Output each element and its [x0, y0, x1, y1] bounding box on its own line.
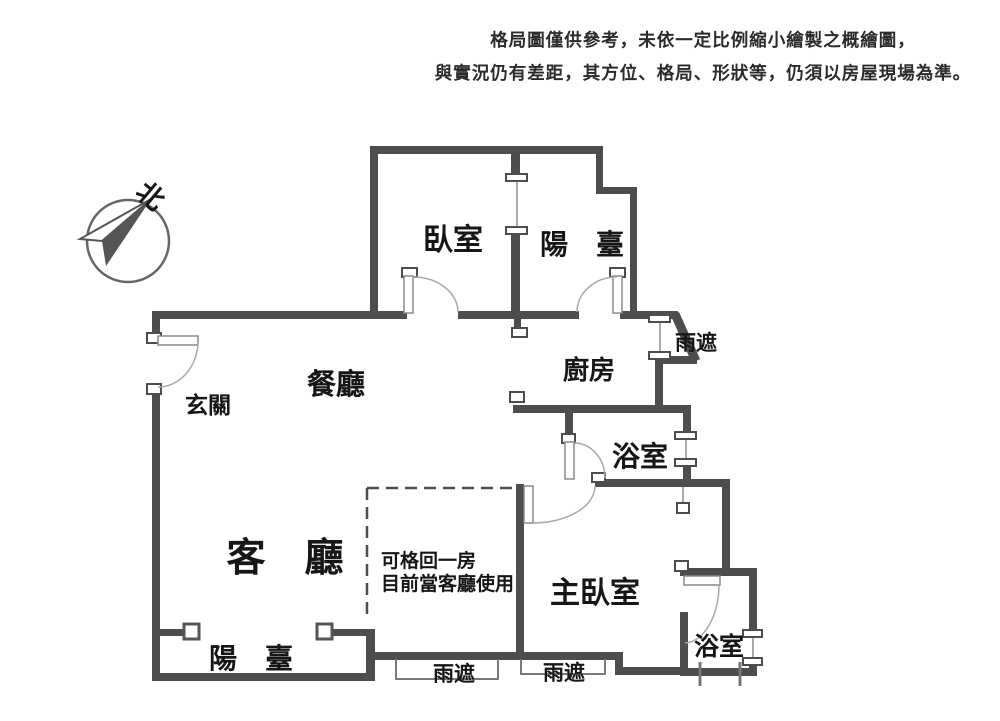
wall-segment — [371, 652, 623, 660]
label-entry: 玄關 — [185, 392, 231, 418]
balcony-rail — [160, 629, 185, 636]
wall-segment — [680, 668, 757, 676]
wall-segment — [511, 146, 520, 175]
wall-segment — [655, 356, 663, 413]
label-rain-cover-right: 雨遮 — [675, 331, 717, 355]
window-tick — [649, 315, 670, 322]
wall-segment — [511, 234, 520, 319]
label-bedroom: 臥室 — [423, 223, 483, 257]
wall-segment — [596, 146, 603, 194]
entry-door-leaf — [158, 336, 198, 345]
wall-segment — [366, 629, 375, 681]
column-marker — [184, 624, 199, 639]
wall-cap — [592, 473, 605, 482]
lower-bath-door-leaf — [684, 576, 720, 585]
floor-plan-page: 格局圖僅供參考，未依一定比例縮小繪製之概繪圖， 與實況仍有差距，其方位、格局、形… — [0, 0, 1000, 721]
window-tick — [743, 658, 762, 665]
wall-segment — [152, 387, 160, 681]
wall-segment — [680, 568, 757, 576]
label-balcony-top: 陽 臺 — [540, 229, 624, 260]
entry-door-arc — [158, 341, 198, 387]
label-living: 客 廳 — [226, 537, 343, 580]
wall-segment — [152, 311, 407, 319]
window-tick — [743, 630, 762, 637]
balcony-rail — [332, 629, 367, 636]
wall-segment — [152, 673, 375, 681]
shaft-marker — [677, 503, 689, 513]
label-flex-note-1: 可格回一房 — [381, 549, 476, 572]
wall-segment — [595, 479, 730, 487]
wall-segment — [680, 612, 688, 676]
label-flex-note-2: 目前當客廳使用 — [381, 572, 514, 595]
wall-segment — [370, 146, 378, 319]
label-kitchen: 廚房 — [563, 355, 615, 385]
label-bath-lower: 浴室 — [694, 632, 744, 661]
room-labels: 臥室 陽 臺 雨遮 廚房 餐廳 玄關 浴室 客 廳 可格回一房 目前當客廳使用 … — [185, 223, 744, 686]
wall-segment — [630, 187, 637, 319]
wall-segment — [749, 568, 757, 633]
balcony-columns — [184, 624, 332, 639]
wall-segment — [615, 667, 688, 675]
upper-bath-door-leaf — [565, 442, 574, 479]
wall-cap — [510, 392, 524, 402]
balcony-door-arc — [577, 277, 617, 312]
label-rain-cover-bottom-right: 雨遮 — [543, 661, 585, 685]
label-balcony-bottom: 陽 臺 — [209, 643, 293, 674]
wall-cap — [512, 328, 527, 337]
bedroom-door-leaf — [404, 276, 413, 313]
wall-segment — [513, 405, 691, 413]
label-master-bedroom: 主臥室 — [550, 576, 640, 610]
wall-segment — [516, 484, 524, 659]
wall-segment — [458, 311, 579, 319]
floor-plan-drawing: 北 臥室 陽 臺 雨遮 廚房 餐廳 玄關 浴室 客 廳 可格回一房 目前當客廳使… — [0, 0, 1000, 721]
column-marker — [317, 624, 332, 639]
wall-segment — [722, 479, 730, 572]
label-bath-upper: 浴室 — [612, 440, 668, 472]
label-rain-cover-bottom-left: 雨遮 — [433, 662, 475, 686]
label-dining: 餐廳 — [307, 367, 365, 401]
window-tick — [506, 174, 527, 181]
compass: 北 — [80, 176, 170, 282]
balcony-door-leaf — [613, 276, 622, 313]
wall-cap — [147, 384, 161, 394]
master-door-arc — [533, 486, 595, 523]
window-tick — [506, 227, 527, 234]
window-tick — [649, 352, 670, 359]
wall-segment — [370, 146, 603, 154]
wall-segment — [565, 405, 573, 437]
bedroom-door-arc — [413, 277, 458, 312]
window-tick — [675, 459, 696, 466]
wall-cap — [675, 561, 688, 571]
master-door-leaf — [524, 486, 533, 523]
window-tick — [675, 432, 696, 439]
